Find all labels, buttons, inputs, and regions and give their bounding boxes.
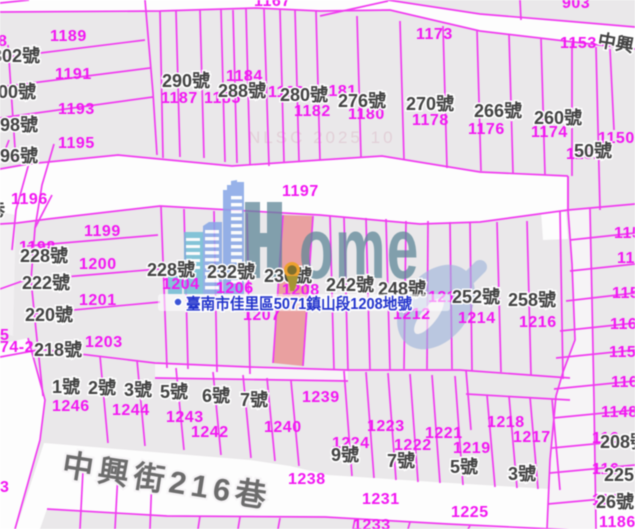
svg-text:1200: 1200 bbox=[79, 256, 117, 273]
svg-text:1173: 1173 bbox=[416, 26, 453, 43]
svg-text:300號: 300號 bbox=[0, 82, 36, 102]
svg-text:1153: 1153 bbox=[560, 35, 597, 52]
svg-text:296號: 296號 bbox=[0, 146, 38, 166]
svg-text:1231: 1231 bbox=[362, 491, 400, 508]
svg-text:5號: 5號 bbox=[160, 382, 188, 402]
svg-text:1246: 1246 bbox=[52, 398, 90, 415]
svg-text:276號: 276號 bbox=[338, 91, 386, 111]
svg-text:115: 115 bbox=[612, 285, 635, 302]
svg-text:1197: 1197 bbox=[282, 183, 319, 200]
svg-text:1191: 1191 bbox=[55, 66, 92, 83]
svg-text:3: 3 bbox=[0, 479, 9, 496]
svg-text:1238: 1238 bbox=[288, 471, 326, 488]
svg-text:1203: 1203 bbox=[85, 334, 123, 351]
svg-text:270號: 270號 bbox=[406, 94, 454, 114]
svg-text:臺南市佳里區5071鎮山段1208地號: 臺南市佳里區5071鎮山段1208地號 bbox=[186, 294, 412, 313]
svg-text:74-2: 74-2 bbox=[0, 339, 34, 356]
svg-text:225: 225 bbox=[604, 465, 634, 485]
svg-text:1201: 1201 bbox=[79, 292, 117, 309]
svg-text:1214: 1214 bbox=[458, 310, 496, 327]
svg-text:1217: 1217 bbox=[513, 429, 551, 446]
svg-text:1195: 1195 bbox=[58, 135, 95, 152]
svg-text:302號: 302號 bbox=[0, 46, 40, 66]
svg-text:208號: 208號 bbox=[600, 432, 635, 452]
svg-text:1176: 1176 bbox=[468, 121, 505, 138]
svg-text:258號: 258號 bbox=[508, 290, 556, 310]
svg-text:218號: 218號 bbox=[34, 340, 82, 360]
svg-text:1244: 1244 bbox=[112, 402, 150, 419]
svg-text:242號: 242號 bbox=[326, 275, 374, 295]
svg-text:228號: 228號 bbox=[20, 246, 68, 266]
svg-text:26號: 26號 bbox=[596, 492, 634, 512]
svg-text:115: 115 bbox=[609, 344, 635, 361]
svg-text:1223: 1223 bbox=[367, 418, 405, 435]
svg-text:266號: 266號 bbox=[474, 101, 522, 121]
svg-text:232號: 232號 bbox=[207, 262, 255, 282]
svg-text:116: 116 bbox=[611, 374, 635, 391]
svg-text:1199: 1199 bbox=[84, 223, 121, 240]
svg-text:1239: 1239 bbox=[302, 389, 340, 406]
svg-text:1193: 1193 bbox=[58, 101, 95, 118]
svg-text:116: 116 bbox=[610, 316, 635, 333]
svg-text:1196: 1196 bbox=[11, 191, 48, 208]
svg-text:NLSC 2025 10: NLSC 2025 10 bbox=[248, 128, 396, 147]
svg-text:1233: 1233 bbox=[353, 517, 391, 529]
svg-text:1240: 1240 bbox=[264, 419, 302, 436]
svg-text:116: 116 bbox=[617, 250, 635, 267]
svg-text:5號: 5號 bbox=[450, 457, 478, 477]
svg-text:1219: 1219 bbox=[453, 440, 491, 457]
svg-text:1148: 1148 bbox=[601, 404, 635, 421]
svg-text:288號: 288號 bbox=[218, 81, 266, 101]
svg-text:1號: 1號 bbox=[52, 377, 80, 397]
svg-text:2號: 2號 bbox=[88, 378, 116, 398]
svg-text:220號: 220號 bbox=[25, 305, 73, 325]
svg-text:7號: 7號 bbox=[387, 451, 415, 471]
svg-text:260號: 260號 bbox=[534, 108, 582, 128]
svg-text:9號: 9號 bbox=[331, 445, 359, 465]
svg-text:1182: 1182 bbox=[294, 103, 331, 120]
svg-text:228號: 228號 bbox=[147, 260, 195, 280]
svg-text:1225: 1225 bbox=[451, 504, 489, 521]
svg-text:50號: 50號 bbox=[574, 141, 612, 161]
svg-text:252號: 252號 bbox=[452, 287, 500, 307]
svg-text:298號: 298號 bbox=[0, 115, 38, 135]
svg-text:3號: 3號 bbox=[124, 380, 152, 400]
svg-text:3號: 3號 bbox=[508, 464, 536, 484]
svg-text:1186: 1186 bbox=[599, 514, 635, 529]
svg-text:290號: 290號 bbox=[162, 71, 210, 91]
svg-text:222號: 222號 bbox=[22, 273, 70, 293]
svg-text:115: 115 bbox=[614, 225, 635, 242]
svg-text:1242: 1242 bbox=[191, 424, 229, 441]
svg-text:903: 903 bbox=[562, 0, 590, 12]
svg-text:1216: 1216 bbox=[519, 314, 557, 331]
svg-text:1167: 1167 bbox=[254, 0, 291, 10]
svg-text:1189: 1189 bbox=[50, 28, 87, 45]
svg-text:1187: 1187 bbox=[161, 90, 198, 107]
svg-text:280號: 280號 bbox=[280, 85, 328, 105]
svg-text:7號: 7號 bbox=[240, 390, 268, 410]
svg-text:1178: 1178 bbox=[412, 112, 449, 129]
svg-text:6號: 6號 bbox=[202, 386, 230, 406]
